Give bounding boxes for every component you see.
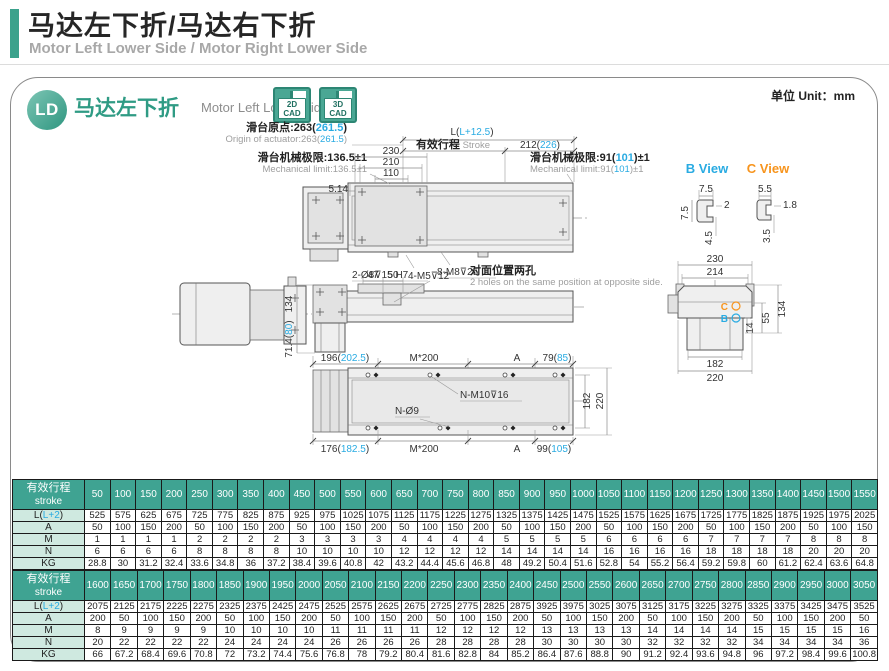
spec-cell: 9 <box>190 625 216 637</box>
spec-cell: 16 <box>647 546 673 558</box>
spec-cell: 20 <box>852 546 878 558</box>
spec-cell: 150 <box>647 522 673 534</box>
stroke-value-header: 3000 <box>824 571 850 601</box>
spec-cell: 4 <box>391 534 417 546</box>
dim-176: 176(182.5) <box>321 444 369 455</box>
spec-cell: 59.2 <box>698 558 724 570</box>
stroke-value-header: 2900 <box>771 571 797 601</box>
stroke-value-header: 2100 <box>349 571 375 601</box>
spec-cell: 24 <box>296 637 322 649</box>
spec-cell: 49.2 <box>519 558 545 570</box>
spec-cell: 2575 <box>349 601 375 613</box>
spec-cell: 3225 <box>692 601 718 613</box>
stroke-value-header: 850 <box>494 480 520 510</box>
spec-cell: 12 <box>428 625 454 637</box>
spec-cell: 96 <box>745 649 771 661</box>
stroke-value-header: 2950 <box>798 571 824 601</box>
spec-cell: 50 <box>187 522 213 534</box>
spec-cell: 99.6 <box>824 649 850 661</box>
spec-cell: 200 <box>468 522 494 534</box>
spec-cell: 85.2 <box>507 649 533 661</box>
spec-cell: 5 <box>494 534 520 546</box>
spec-cell: 8 <box>85 625 111 637</box>
opposite-holes-note-cn: 对面位置两孔 <box>470 263 536 277</box>
spec-cell: 3975 <box>560 601 586 613</box>
spec-cell: 200 <box>507 613 533 625</box>
spec-cell: 3475 <box>824 601 850 613</box>
spec-cell: 150 <box>750 522 776 534</box>
stroke-value-header: 2150 <box>375 571 401 601</box>
spec-cell: 1225 <box>443 510 469 522</box>
spec-cell: 1425 <box>545 510 571 522</box>
hole-callout-n-m10: N-M10⊽16 <box>460 390 509 401</box>
stroke-value-header: 2250 <box>428 571 454 601</box>
spec-cell: 88.8 <box>587 649 613 661</box>
spec-cell: 7 <box>698 534 724 546</box>
spec-cell: 50 <box>217 613 243 625</box>
marker-b-label: B <box>721 314 728 325</box>
spec-cell: 3525 <box>851 601 878 613</box>
spec-cell: 7 <box>775 534 801 546</box>
spec-cell: 64.8 <box>852 558 878 570</box>
spec-cell: 150 <box>340 522 366 534</box>
spec-cell: 8 <box>212 546 238 558</box>
spec-cell: 14 <box>639 625 665 637</box>
spec-cell: 13 <box>560 625 586 637</box>
spec-cell: 1 <box>161 534 187 546</box>
spec-cell: 5 <box>545 534 571 546</box>
spec-cell: 76.8 <box>322 649 348 661</box>
top-view: L(L+12.5) 有效行程 Stroke 212(226) 滑台原点:263(… <box>226 120 650 281</box>
technical-drawing: L(L+12.5) 有效行程 Stroke 212(226) 滑台原点:263(… <box>0 120 889 478</box>
spec-cell: 55.2 <box>647 558 673 570</box>
spec-cell: 15 <box>824 625 850 637</box>
spec-cell: 30 <box>587 637 613 649</box>
spec-cell: 16 <box>851 625 878 637</box>
spec-cell: 1575 <box>622 510 648 522</box>
spec-cell: 1875 <box>775 510 801 522</box>
stroke-table-2: 有效行程stroke160016501700175018001850190019… <box>12 570 878 661</box>
stroke-value-header: 650 <box>391 480 417 510</box>
spec-cell: 200 <box>402 613 428 625</box>
spec-cell: 2225 <box>164 601 190 613</box>
stroke-value-header: 2500 <box>560 571 586 601</box>
spec-cell: 12 <box>468 546 494 558</box>
spec-cell: 1025 <box>340 510 366 522</box>
spec-cell: 150 <box>238 522 264 534</box>
spec-cell: 2425 <box>269 601 295 613</box>
spec-cell: 2525 <box>322 601 348 613</box>
spec-cell: 82.8 <box>454 649 480 661</box>
spec-cell: 68.4 <box>137 649 163 661</box>
spec-cell: 825 <box>238 510 264 522</box>
stroke-value-header: 3050 <box>851 571 878 601</box>
stroke-spec-table: 有效行程stroke501001502002503003504004505005… <box>12 479 878 570</box>
spec-cell: 66 <box>85 649 111 661</box>
row-label: N <box>13 637 85 649</box>
spec-cell: 34 <box>745 637 771 649</box>
spec-cell: 2075 <box>85 601 111 613</box>
spec-cell: 50 <box>391 522 417 534</box>
spec-cell: 34 <box>798 637 824 649</box>
stroke-value-header: 2650 <box>639 571 665 601</box>
spec-cell: 50 <box>111 613 137 625</box>
spec-cell: 200 <box>366 522 392 534</box>
row-label: KG <box>13 558 85 570</box>
spec-cell: 1375 <box>519 510 545 522</box>
spec-cell: 100 <box>243 613 269 625</box>
spec-cell: 22 <box>111 637 137 649</box>
stroke-value-header: 1100 <box>622 480 648 510</box>
spec-cell: 16 <box>596 546 622 558</box>
stroke-value-header: 1600 <box>85 571 111 601</box>
spec-cell: 3325 <box>745 601 771 613</box>
mech-limit-left-cn: 滑台机械极限:136.5±1 <box>258 150 367 164</box>
spec-cell: 1625 <box>647 510 673 522</box>
spec-cell: 10 <box>296 625 322 637</box>
spec-cell: 1 <box>85 534 111 546</box>
cad-3d-label: 3D <box>333 100 343 109</box>
spec-cell: 32.4 <box>161 558 187 570</box>
spec-cell: 91.2 <box>639 649 665 661</box>
stroke-value-header: 150 <box>136 480 162 510</box>
spec-cell: 200 <box>570 522 596 534</box>
c-dim-5-5: 5.5 <box>758 184 772 195</box>
spec-cell: 33.6 <box>187 558 213 570</box>
spec-cell: 26 <box>402 637 428 649</box>
dim-79: 79(85) <box>543 353 572 364</box>
spec-cell: 100 <box>724 522 750 534</box>
spec-cell: 13 <box>534 625 560 637</box>
spec-cell: 50 <box>698 522 724 534</box>
c-view: C View 5.5 1.8 3.5 <box>747 161 798 243</box>
spec-cell: 28 <box>454 637 480 649</box>
spec-cell: 100 <box>560 613 586 625</box>
spec-cell: 2625 <box>375 601 401 613</box>
spec-cell: 7 <box>724 534 750 546</box>
end-dim-134: 134 <box>777 300 788 317</box>
spec-cell: 6 <box>161 546 187 558</box>
title-accent-bar <box>10 9 19 58</box>
spec-cell: 67.2 <box>111 649 137 661</box>
spec-cell: 61.2 <box>775 558 801 570</box>
spec-cell: 6 <box>110 546 136 558</box>
spec-cell: 100 <box>315 522 341 534</box>
spec-cell: 2025 <box>852 510 878 522</box>
dim-5-14: 5.14 <box>329 184 349 195</box>
spec-cell: 8 <box>238 546 264 558</box>
stroke-spec-table: 有效行程stroke160016501700175018001850190019… <box>12 570 878 661</box>
spec-cell: 4 <box>443 534 469 546</box>
spec-cell: 90 <box>613 649 639 661</box>
dim-a-bottom: A <box>514 444 521 455</box>
marker-c-label: C <box>721 302 728 313</box>
dim-182-vertical: 182 <box>582 392 593 409</box>
b-dim-4-5: 4.5 <box>704 231 715 245</box>
stroke-value-header: 350 <box>238 480 264 510</box>
stroke-value-header: 100 <box>110 480 136 510</box>
end-dim-220: 220 <box>707 373 724 384</box>
spec-cell: 1975 <box>826 510 852 522</box>
opposite-holes-note-en: 2 holes on the same position at opposite… <box>470 277 663 288</box>
stroke-table-1: 有效行程stroke501001502002503003504004505005… <box>12 479 878 570</box>
spec-cell: 150 <box>852 522 878 534</box>
spec-cell: 52.8 <box>596 558 622 570</box>
spec-cell: 2875 <box>507 601 533 613</box>
stroke-value-header: 1000 <box>570 480 596 510</box>
spec-cell: 10 <box>243 625 269 637</box>
stroke-value-header: 1150 <box>647 480 673 510</box>
b-dim-7-5-left: 7.5 <box>680 206 691 220</box>
spec-cell: 32 <box>719 637 745 649</box>
page-header: 马达左下折/马达右下折 Motor Left Lower Side / Moto… <box>0 0 889 65</box>
spec-cell: 50 <box>801 522 827 534</box>
spec-cell: 6 <box>673 534 699 546</box>
stroke-value-header: 2750 <box>692 571 718 601</box>
spec-cell: 36 <box>851 637 878 649</box>
spec-cell: 100 <box>622 522 648 534</box>
stroke-value-header: 2000 <box>296 571 322 601</box>
spec-cell: 22 <box>137 637 163 649</box>
spec-cell: 150 <box>443 522 469 534</box>
spec-cell: 50 <box>851 613 878 625</box>
stroke-value-header: 700 <box>417 480 443 510</box>
stroke-value-header: 2050 <box>322 571 348 601</box>
spec-cell: 12 <box>454 625 480 637</box>
dim-m200-bottom: M*200 <box>410 444 439 455</box>
stroke-value-header: 1350 <box>750 480 776 510</box>
spec-cell: 150 <box>375 613 401 625</box>
spec-cell: 150 <box>545 522 571 534</box>
end-dim-214: 214 <box>707 267 724 278</box>
stroke-value-header: 800 <box>468 480 494 510</box>
page-title: 马达左下折/马达右下折 <box>28 4 317 43</box>
stroke-value-header: 2200 <box>402 571 428 601</box>
spec-cell: 80.4 <box>402 649 428 661</box>
b-view: B View 7.5 2 7.5 4.5 <box>680 161 730 245</box>
spec-cell: 6 <box>85 546 111 558</box>
model-title: 马达左下折 <box>74 92 179 122</box>
spec-cell: 1725 <box>698 510 724 522</box>
b-view-title: B View <box>686 161 729 176</box>
spec-cell: 150 <box>164 613 190 625</box>
spec-cell: 575 <box>110 510 136 522</box>
spec-cell: 6 <box>136 546 162 558</box>
b-dim-2: 2 <box>724 200 730 211</box>
spec-cell: 13 <box>587 625 613 637</box>
dim-196: 196(202.5) <box>321 353 369 364</box>
spec-cell: 150 <box>481 613 507 625</box>
spec-cell: 87.6 <box>560 649 586 661</box>
spec-cell: 18 <box>750 546 776 558</box>
spec-cell: 86.4 <box>534 649 560 661</box>
spec-cell: 18 <box>775 546 801 558</box>
spec-cell: 1325 <box>494 510 520 522</box>
spec-cell: 20 <box>801 546 827 558</box>
spec-cell: 62.4 <box>801 558 827 570</box>
spec-cell: 1175 <box>417 510 443 522</box>
spec-cell: 12 <box>443 546 469 558</box>
spec-cell: 50 <box>494 522 520 534</box>
spec-cell: 92.4 <box>666 649 692 661</box>
dim-230: 230 <box>383 146 400 157</box>
spec-cell: 100.8 <box>851 649 878 661</box>
spec-cell: 75.6 <box>296 649 322 661</box>
spec-cell: 2475 <box>296 601 322 613</box>
spec-cell: 1 <box>136 534 162 546</box>
spec-cell: 98.4 <box>798 649 824 661</box>
side-view: 47 50 4-M5⊽12 对面位置两孔 2 holes on the same… <box>172 263 663 368</box>
spec-cell: 2 <box>212 534 238 546</box>
stroke-value-header: 1950 <box>269 571 295 601</box>
spec-cell: 2675 <box>402 601 428 613</box>
spec-cell: 3425 <box>798 601 824 613</box>
spec-cell: 100 <box>417 522 443 534</box>
spec-cell: 70.8 <box>190 649 216 661</box>
spec-cell: 24 <box>243 637 269 649</box>
hole-callout-4-m5: 4-M5⊽12 <box>408 271 450 282</box>
spec-cell: 94.8 <box>719 649 745 661</box>
spec-cell: 39.6 <box>315 558 341 570</box>
stroke-value-header: 2850 <box>745 571 771 601</box>
stroke-dim-label: 有效行程 Stroke <box>416 137 490 151</box>
spec-cell: 1125 <box>391 510 417 522</box>
spec-cell: 1825 <box>750 510 776 522</box>
spec-cell: 20 <box>826 546 852 558</box>
spec-cell: 1275 <box>468 510 494 522</box>
spec-cell: 1925 <box>801 510 827 522</box>
spec-cell: 22 <box>164 637 190 649</box>
spec-cell: 8 <box>826 534 852 546</box>
cad-3d-button[interactable]: 3D CAD <box>319 87 357 123</box>
spec-cell: 34 <box>771 637 797 649</box>
spec-cell: 2325 <box>217 601 243 613</box>
dim-134-side: 134 <box>284 295 295 312</box>
dim-210: 210 <box>383 157 400 168</box>
spec-cell: 3025 <box>587 601 613 613</box>
dim-50: 50 <box>387 270 399 281</box>
spec-cell: 12 <box>507 625 533 637</box>
spec-cell: 200 <box>264 522 290 534</box>
spec-cell: 3 <box>366 534 392 546</box>
spec-cell: 50.4 <box>545 558 571 570</box>
spec-cell: 150 <box>136 522 162 534</box>
stroke-value-header: 1400 <box>775 480 801 510</box>
stroke-value-header: 900 <box>519 480 545 510</box>
spec-cell: 16 <box>673 546 699 558</box>
c-dim-3-5: 3.5 <box>762 229 773 243</box>
stroke-value-header: 1450 <box>801 480 827 510</box>
spec-cell: 81.6 <box>428 649 454 661</box>
spec-cell: 10 <box>217 625 243 637</box>
spec-cell: 1775 <box>724 510 750 522</box>
spec-cell: 11 <box>349 625 375 637</box>
spec-cell: 975 <box>315 510 341 522</box>
spec-cell: 100 <box>771 613 797 625</box>
spec-cell: 34 <box>824 637 850 649</box>
spec-cell: 18 <box>698 546 724 558</box>
stroke-value-header: 2450 <box>534 571 560 601</box>
spec-cell: 30 <box>534 637 560 649</box>
spec-cell: 50 <box>745 613 771 625</box>
spec-cell: 2125 <box>111 601 137 613</box>
spec-cell: 2 <box>187 534 213 546</box>
stroke-value-header: 2600 <box>613 571 639 601</box>
spec-cell: 9 <box>137 625 163 637</box>
stroke-value-header: 950 <box>545 480 571 510</box>
row-label: A <box>13 613 85 625</box>
spec-cell: 28 <box>428 637 454 649</box>
spec-cell: 15 <box>771 625 797 637</box>
spec-cell: 10 <box>340 546 366 558</box>
mech-limit-left-en: Mechanical limit:136.5±1 <box>263 164 368 175</box>
stroke-value-header: 1850 <box>217 571 243 601</box>
spec-cell: 2825 <box>481 601 507 613</box>
spec-cell: 150 <box>587 613 613 625</box>
spec-cell: 2775 <box>454 601 480 613</box>
stroke-value-header: 2350 <box>481 571 507 601</box>
hole-callout-n-o9: N-Ø9 <box>395 406 419 417</box>
dim-a-top: A <box>514 353 521 364</box>
spec-cell: 775 <box>212 510 238 522</box>
spec-cell: 48 <box>494 558 520 570</box>
spec-cell: 24 <box>269 637 295 649</box>
spec-cell: 100 <box>666 613 692 625</box>
spec-cell: 50 <box>534 613 560 625</box>
dim-99: 99(105) <box>537 444 571 455</box>
stroke-value-header: 550 <box>340 480 366 510</box>
spec-cell: 1475 <box>570 510 596 522</box>
cad-2d-button[interactable]: 2D CAD <box>273 87 311 123</box>
spec-cell: 32 <box>666 637 692 649</box>
page-subtitle: Motor Left Lower Side / Motor Right Lowe… <box>29 40 367 57</box>
spec-cell: 28.8 <box>85 558 111 570</box>
end-dim-182: 182 <box>707 359 724 370</box>
spec-cell: 30 <box>110 558 136 570</box>
spec-cell: 15 <box>798 625 824 637</box>
spec-cell: 50 <box>85 522 111 534</box>
spec-cell: 93.6 <box>692 649 718 661</box>
spec-cell: 32 <box>692 637 718 649</box>
spec-cell: 4 <box>417 534 443 546</box>
stroke-value-header: 2300 <box>454 571 480 601</box>
spec-cell: 43.2 <box>391 558 417 570</box>
spec-cell: 18 <box>724 546 750 558</box>
stroke-value-header: 1550 <box>852 480 878 510</box>
dim-m200-top: M*200 <box>410 353 439 364</box>
spec-cell: 8 <box>264 546 290 558</box>
spec-cell: 6 <box>647 534 673 546</box>
spec-cell: 9 <box>111 625 137 637</box>
spec-tables: 有效行程stroke501001502002503003504004505005… <box>12 479 878 661</box>
spec-cell: 22 <box>190 637 216 649</box>
spec-cell: 200 <box>161 522 187 534</box>
spec-cell: 5 <box>519 534 545 546</box>
spec-cell: 13 <box>613 625 639 637</box>
dim-47: 47 <box>367 270 379 281</box>
spec-cell: 200 <box>673 522 699 534</box>
spec-cell: 8 <box>187 546 213 558</box>
spec-cell: 925 <box>289 510 315 522</box>
spec-cell: 59.8 <box>724 558 750 570</box>
stroke-value-header: 450 <box>289 480 315 510</box>
cad-2d-label: 2D <box>287 100 297 109</box>
spec-cell: 15 <box>745 625 771 637</box>
spec-cell: 2725 <box>428 601 454 613</box>
spec-cell: 9 <box>164 625 190 637</box>
stroke-value-header: 500 <box>315 480 341 510</box>
origin-label-cn: 滑台原点:263(261.5) <box>246 120 347 134</box>
